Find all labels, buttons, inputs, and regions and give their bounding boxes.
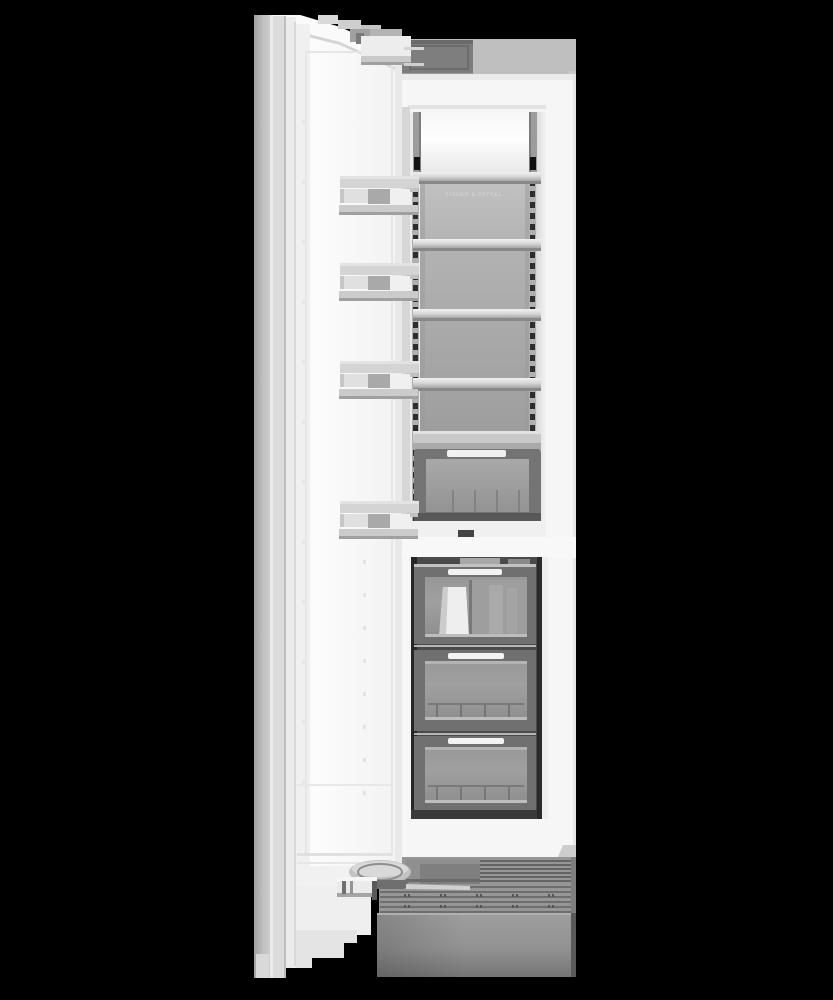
svg-text:FISHER & PAYKEL: FISHER & PAYKEL (446, 192, 503, 198)
